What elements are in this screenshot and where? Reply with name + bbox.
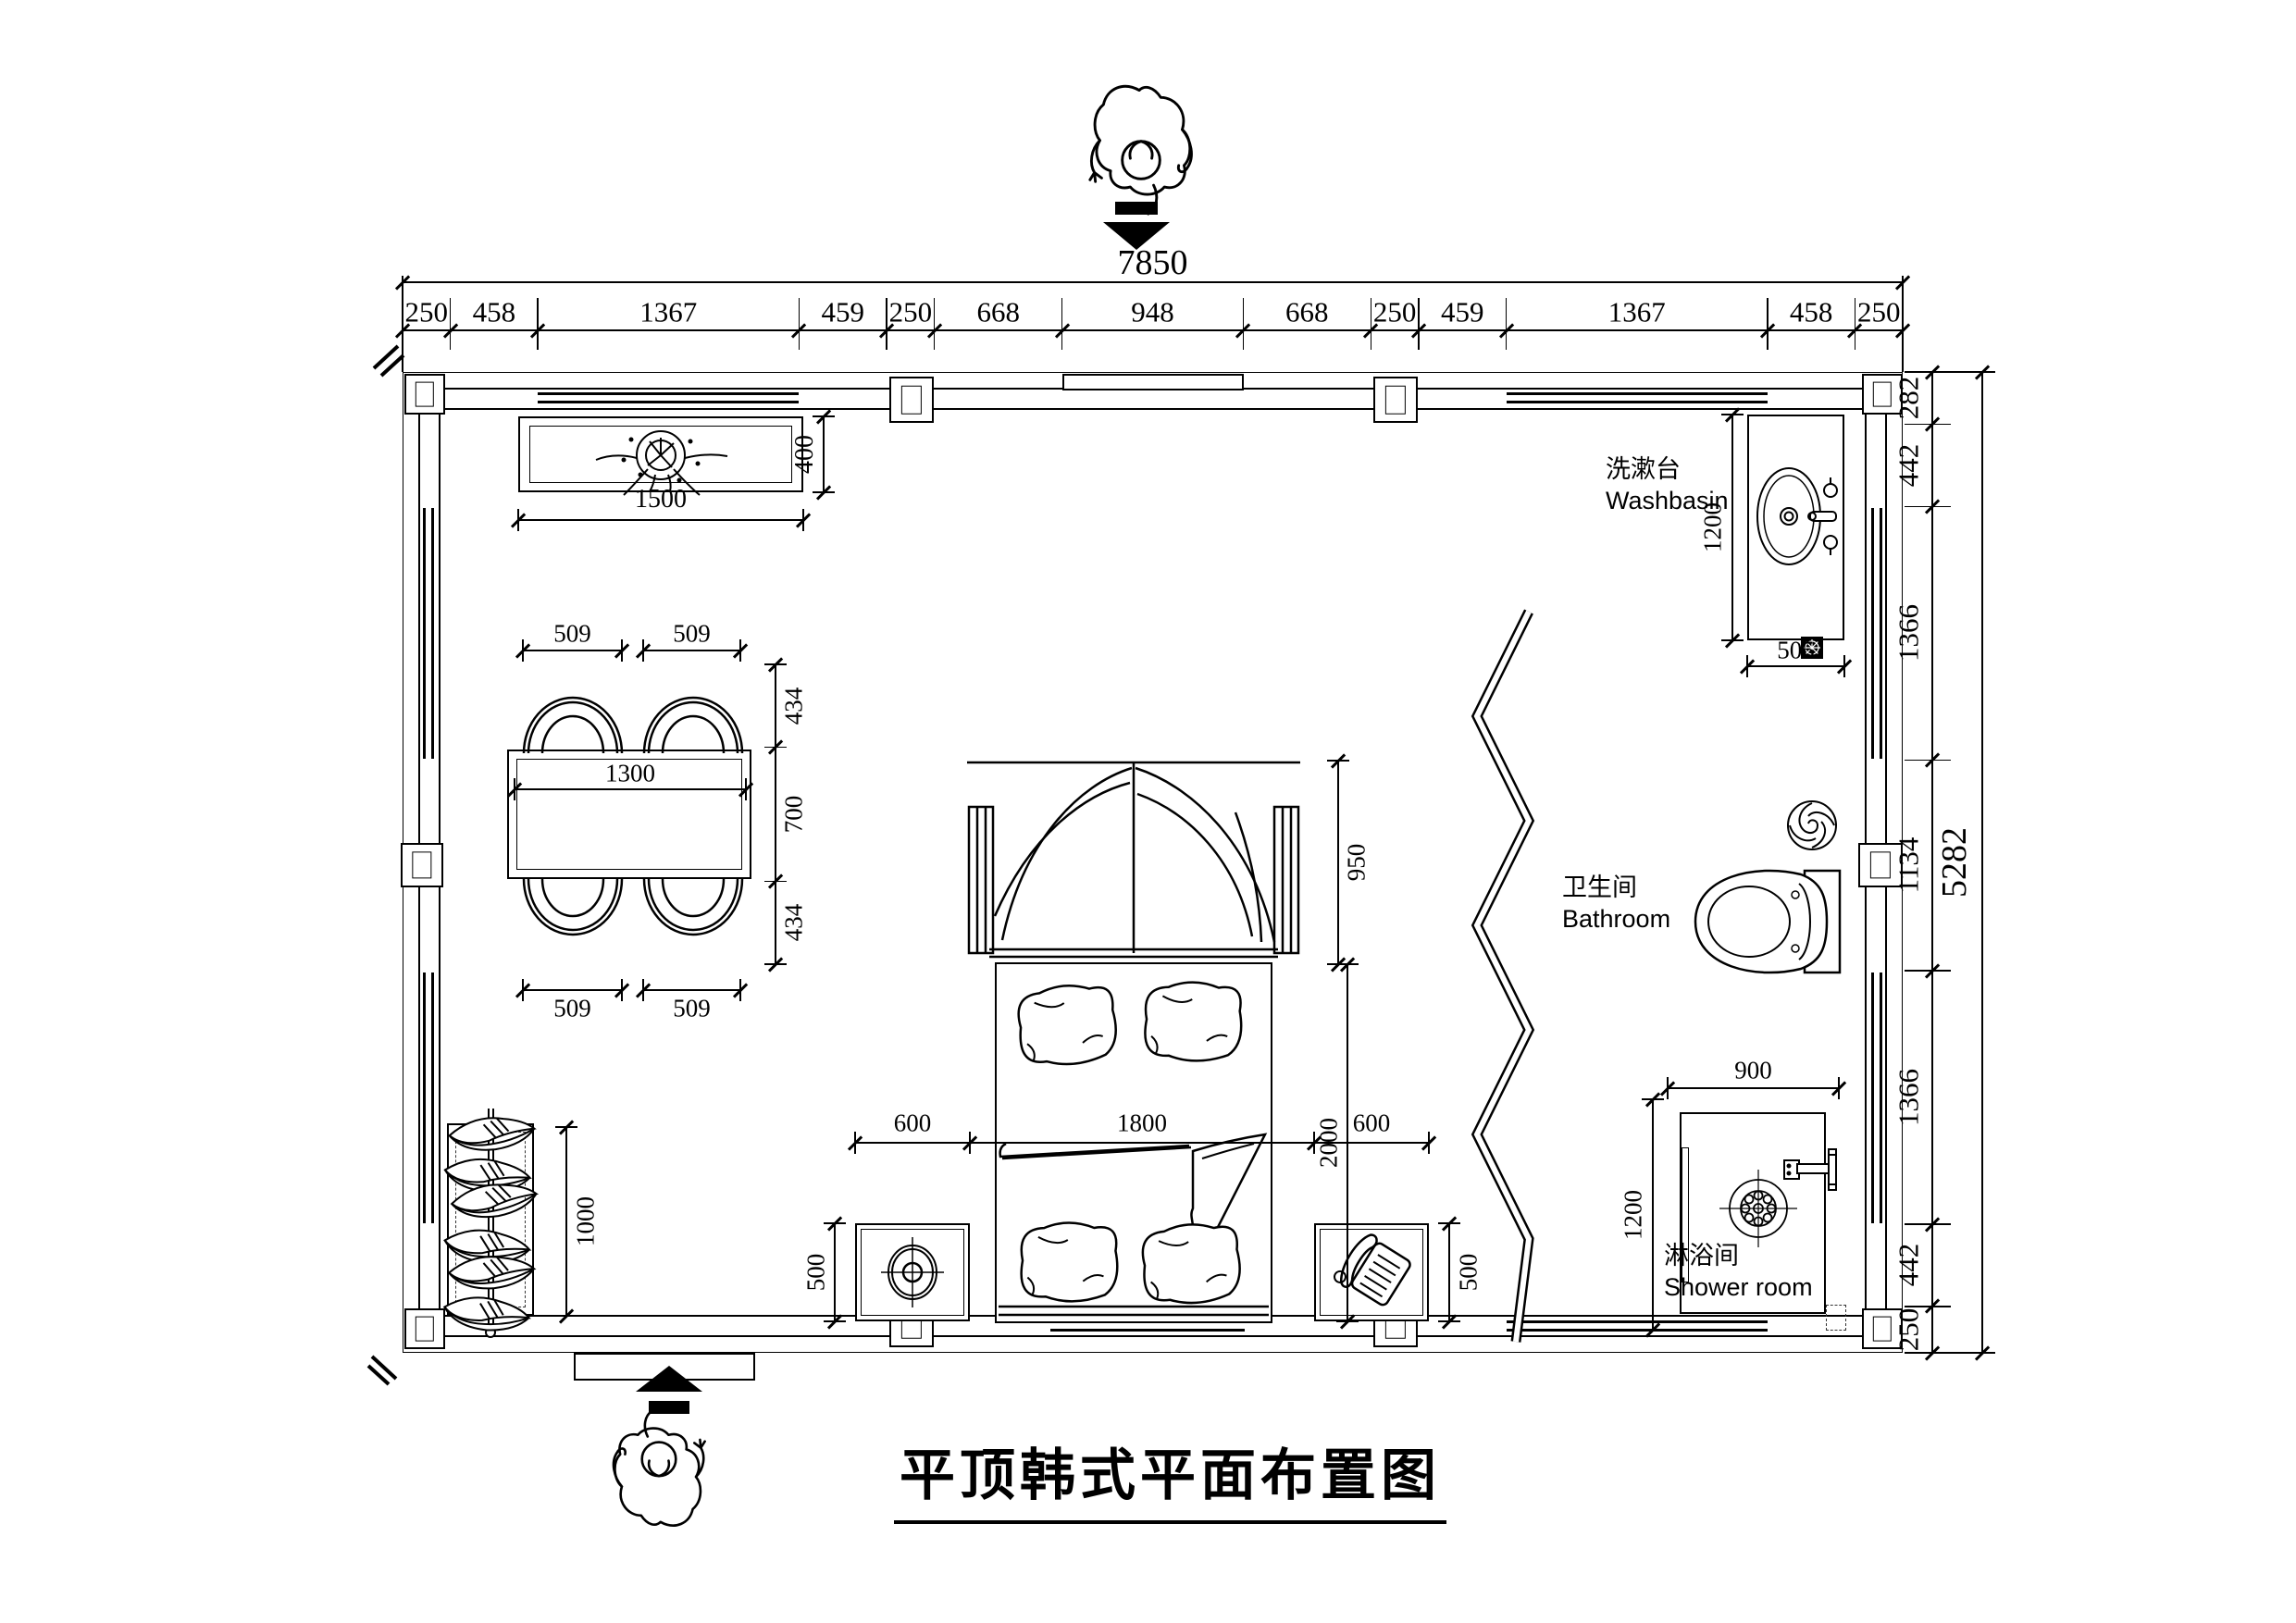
dim-label: 282 (1894, 377, 1923, 420)
dim-line (1931, 372, 1933, 1353)
dim-label: 700 (782, 796, 807, 834)
dim-label: 1000 (574, 1196, 599, 1246)
dim-extension (764, 663, 787, 664)
dim-extension (1843, 655, 1844, 677)
dim-extension (1721, 414, 1744, 415)
dim-label: 1500 (635, 487, 687, 513)
dim-extension (522, 979, 523, 1001)
dim-line (834, 1223, 836, 1321)
dim-label: 250 (1894, 1308, 1923, 1352)
dim-label: 948 (1131, 298, 1174, 327)
dim-extension (621, 979, 622, 1001)
dim-label: 442 (1894, 1244, 1923, 1287)
dim-label: 458 (473, 298, 516, 327)
dim-extension (1642, 1329, 1664, 1330)
dim-label: 1134 (1894, 837, 1923, 894)
dim-line (523, 650, 622, 651)
dim-line (565, 1127, 567, 1316)
dim-extension (1905, 1352, 1995, 1353)
dim-line (1347, 964, 1348, 1321)
dim-extension (642, 639, 643, 662)
dim-line (1747, 665, 1844, 667)
dim-line (1731, 415, 1733, 640)
dim-label: 668 (1285, 298, 1329, 327)
dim-label: 509 (553, 622, 591, 647)
dim-line (515, 788, 746, 790)
dim-label: 1367 (639, 298, 697, 327)
dim-extension (1243, 298, 1244, 350)
dim-label: 1200 (1701, 502, 1726, 552)
dim-extension (450, 298, 451, 350)
dim-label: 1800 (1117, 1111, 1167, 1136)
dim-extension (1428, 1132, 1429, 1154)
dim-label: 459 (1441, 298, 1484, 327)
dim-extension (813, 491, 835, 492)
dim-extension (1667, 1077, 1668, 1099)
dim-label: 250 (1373, 298, 1417, 327)
dim-label: 500 (1457, 1254, 1482, 1292)
dim-label: 250 (889, 298, 933, 327)
dim-label: 458 (1790, 298, 1833, 327)
dim-line (823, 416, 825, 492)
dim-extension (1905, 424, 1951, 425)
dim-extension (764, 963, 787, 964)
dim-label: 7850 (1118, 245, 1188, 280)
dim-label: 459 (822, 298, 865, 327)
dim-line (1337, 761, 1339, 964)
dim-line (1652, 1099, 1654, 1330)
dim-extension (1438, 1320, 1460, 1321)
dim-extension (1746, 655, 1747, 677)
dim-extension (1855, 298, 1855, 350)
dim-label: 505 (1777, 638, 1815, 663)
dim-extension (739, 639, 740, 662)
dim-extension (1905, 1223, 1951, 1224)
dim-label: 400 (792, 435, 818, 474)
dim-line (643, 650, 740, 651)
dim-extension (621, 639, 622, 662)
dim-label: 5282 (1937, 827, 1972, 898)
dim-extension (934, 298, 935, 350)
dim-extension (764, 881, 787, 882)
dim-extension (1721, 639, 1744, 640)
dim-extension (642, 979, 643, 1001)
dim-label: 1300 (605, 762, 655, 787)
dim-line (518, 519, 803, 521)
dim-line (523, 989, 622, 991)
dim-line (1981, 372, 1983, 1353)
dim-extension (1327, 963, 1349, 964)
dim-extension (1371, 298, 1371, 350)
dim-extension (1642, 1098, 1664, 1099)
dim-extension (969, 1132, 970, 1154)
dim-label: 1366 (1894, 604, 1923, 662)
dim-label: 600 (1353, 1111, 1391, 1136)
dim-extension (1327, 760, 1349, 761)
dim-extension (1838, 1077, 1839, 1099)
dim-label: 1200 (1621, 1190, 1646, 1240)
dim-extension (1767, 298, 1768, 350)
dim-extension (1061, 298, 1062, 350)
dim-label: 1366 (1894, 1069, 1923, 1126)
dim-extension (799, 298, 800, 350)
dim-extension (522, 639, 523, 662)
dim-extension (745, 778, 746, 800)
dim-extension (517, 509, 518, 531)
dim-extension (813, 415, 835, 416)
dim-label: 900 (1734, 1059, 1772, 1084)
dimensions-layer: 7850250458136745925066894866825045913674… (0, 0, 2296, 1623)
dim-extension (1905, 506, 1951, 507)
dim-extension (514, 778, 515, 800)
dim-extension (555, 1315, 577, 1316)
dim-extension (802, 509, 803, 531)
dim-extension (1905, 371, 1995, 372)
dim-line (403, 329, 1903, 331)
dim-label: 442 (1894, 444, 1923, 488)
dim-extension (886, 298, 887, 350)
dim-label: 250 (405, 298, 449, 327)
dim-extension (1905, 970, 1951, 971)
floor-plan-canvas: 洗漱台 Washbasin 卫生间 Bathroom (0, 0, 2296, 1623)
dim-line (643, 989, 740, 991)
dim-extension (402, 276, 403, 372)
dim-label: 434 (782, 688, 807, 725)
dim-label: 1367 (1608, 298, 1666, 327)
dim-line (855, 1142, 1429, 1144)
dim-label: 500 (804, 1254, 829, 1292)
dim-line (1668, 1087, 1839, 1089)
dim-extension (537, 298, 538, 350)
dim-extension (555, 1126, 577, 1127)
dim-extension (824, 1320, 846, 1321)
dim-extension (739, 979, 740, 1001)
dim-extension (1438, 1222, 1460, 1223)
dim-extension (764, 747, 787, 748)
dim-label: 950 (1345, 844, 1370, 882)
dim-extension (1506, 298, 1507, 350)
dim-label: 2000 (1317, 1118, 1342, 1168)
dim-extension (1905, 760, 1951, 761)
dim-extension (824, 1222, 846, 1223)
dim-label: 434 (782, 904, 807, 942)
dim-extension (854, 1132, 855, 1154)
dim-extension (1902, 276, 1903, 372)
dim-extension (1905, 1306, 1951, 1307)
dim-label: 509 (673, 622, 711, 647)
dim-line (1448, 1223, 1450, 1321)
dim-label: 250 (1857, 298, 1901, 327)
dim-extension (1336, 1320, 1359, 1321)
dim-label: 509 (673, 997, 711, 1022)
dim-extension (1418, 298, 1419, 350)
dim-label: 600 (894, 1111, 932, 1136)
dim-label: 509 (553, 997, 591, 1022)
dim-label: 668 (976, 298, 1020, 327)
dim-line (775, 664, 776, 964)
